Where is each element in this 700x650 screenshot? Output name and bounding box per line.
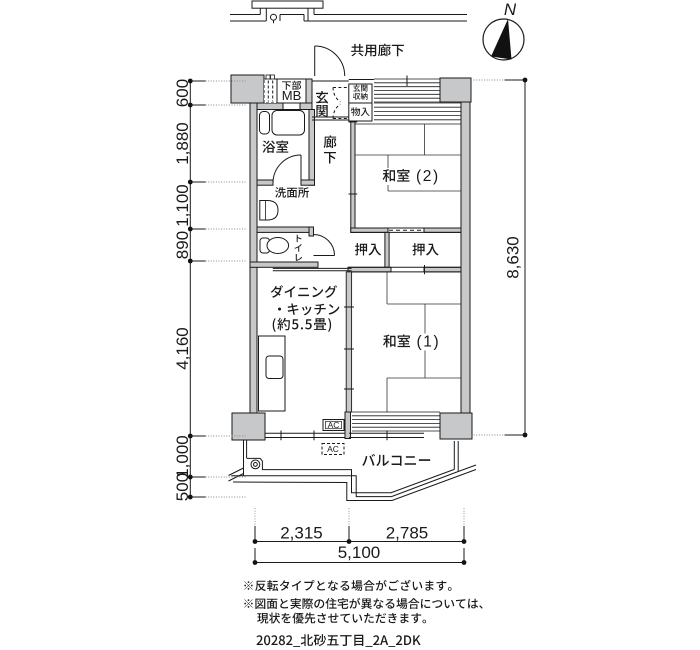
svg-text:N: N [504, 0, 517, 19]
svg-text:AC: AC [328, 420, 340, 430]
svg-text:5,100: 5,100 [338, 543, 381, 562]
svg-text:600: 600 [173, 79, 192, 107]
svg-text:1,100: 1,100 [173, 184, 192, 227]
svg-text:8,630: 8,630 [504, 236, 523, 279]
svg-text:1,880: 1,880 [173, 122, 192, 165]
svg-text:(2): (2) [416, 168, 440, 185]
svg-text:1,000: 1,000 [173, 435, 192, 478]
svg-text:2,315: 2,315 [280, 524, 323, 543]
svg-text:(1): (1) [417, 334, 441, 351]
svg-text:500: 500 [173, 473, 192, 501]
svg-text:890: 890 [173, 231, 192, 259]
svg-text:2,785: 2,785 [386, 524, 429, 543]
svg-text:4,160: 4,160 [173, 327, 192, 370]
svg-text:AC: AC [327, 444, 339, 454]
svg-text:MB: MB [282, 88, 302, 103]
